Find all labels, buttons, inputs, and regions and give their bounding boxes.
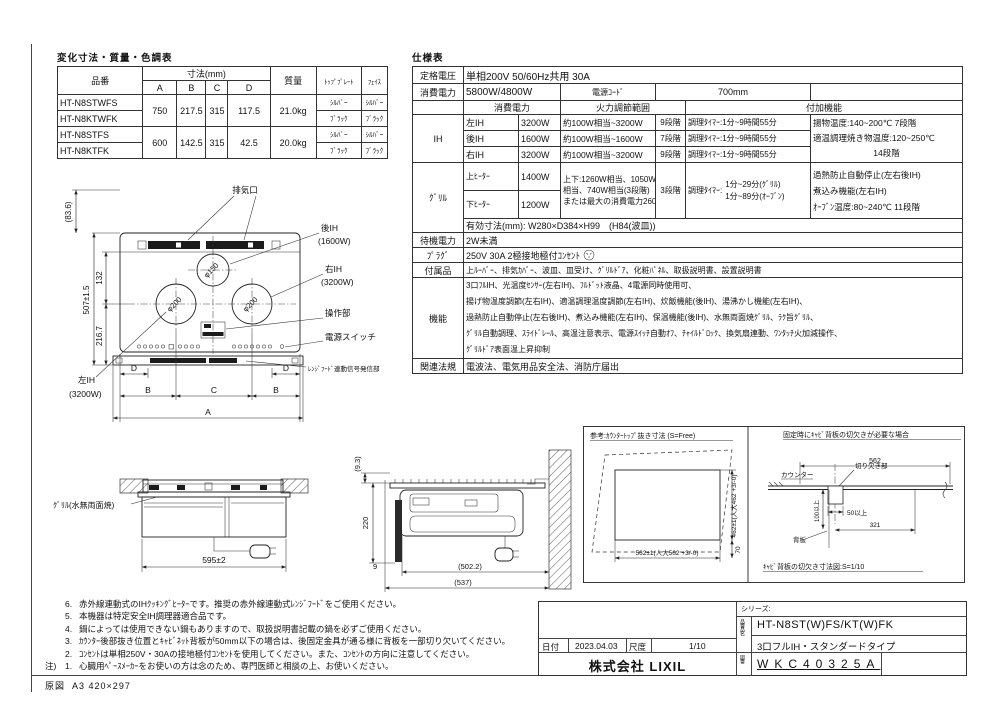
note-text: 赤外線連動式のIHｸｯｷﾝｸﾞﾋｰﾀｰです。推奨の赤外線連動式ﾚﾝｼﾞﾌｰﾄﾞを… (79, 598, 401, 610)
accessories-value: 上ﾙｰﾊﾞｰ、排気ｶﾊﾞｰ、波皿、皿受け、ｸﾞﾘﾙﾄﾞｱ、化粧ﾊﾟﾈﾙ、取扱説明… (464, 263, 963, 278)
power-cord-side (495, 536, 519, 561)
countertop-left (120, 479, 148, 493)
unit-body-side (385, 480, 523, 572)
spec-table-title: 仕様表 (412, 50, 444, 64)
grill-extra-line: 過熱防止自動停止(左右後IH) (813, 167, 960, 183)
reference-panels: 参考:ｶｳﾝﾀｰﾄｯﾌﾟ抜き寸法 (S=Free) 562±1(人大562 +3… (583, 426, 965, 583)
countertop-right (281, 479, 308, 493)
dim-216-7: 216.7 (95, 325, 104, 346)
mass-cell: 20.0kg (270, 127, 316, 159)
grill-timer-line: 1分~89分(ｵｰﾌﾞﾝ) (725, 191, 784, 203)
scale-value: 1/10 (689, 641, 706, 651)
heater-name: 下ﾋｰﾀｰ (464, 191, 519, 219)
title-block-divider (736, 602, 737, 675)
table-row: 有効寸法(mm): W280×D384×H99 (H84(波皿)) (413, 219, 963, 233)
col-header-topplate: ﾄｯﾌﾟﾌﾟﾚｰﾄ (316, 67, 361, 95)
col-header-range: 火力調節範囲 (561, 101, 686, 115)
cutout-title: 参考:ｶｳﾝﾀｰﾄｯﾌﾟ抜き寸法 (S=Free) (590, 431, 695, 440)
model-cell: HT-N8STFS (58, 127, 143, 143)
divider (736, 652, 966, 653)
rear-ih-watt: (1600W) (318, 236, 351, 246)
functions-line: ｸﾞﾘﾙﾄﾞｱ表面温上昇抑制 (466, 342, 960, 358)
accessories-label: 付属品 (413, 263, 464, 278)
table-row: ｸﾞﾘﾙ 上ﾋｰﾀｰ 1400W 上下:1260W相当、1050W 相当、740… (413, 163, 963, 191)
burner-name: 右IH (464, 147, 519, 163)
burner-watt: 3200W (519, 115, 561, 131)
notes-block: 6.赤外線連動式のIHｸｯｷﾝｸﾞﾋｰﾀｰです。推奨の赤外線連動式ﾚﾝｼﾞﾌｰﾄ… (45, 598, 540, 672)
drawing-no-col-label: 図番 (738, 655, 745, 673)
drawing-sheet: 変化寸法・質量・色調表 品番 寸法(mm) 質量 ﾄｯﾌﾟﾌﾟﾚｰﾄ ﾌｪｲｽ … (0, 0, 1000, 708)
col-header-a: A (143, 81, 177, 95)
model-col-label: 品番品名 (738, 619, 745, 651)
grill-extra-line: ｵｰﾌﾞﾝ温度:80~240℃ 11段階 (813, 199, 960, 215)
face-cell: ｼﾙﾊﾞｰ (361, 127, 387, 143)
divider (539, 652, 736, 653)
table-row: 定格電圧 単相200V 50/60Hz共用 30A (413, 67, 963, 84)
left-ih-label: 左IH (78, 375, 95, 385)
dim-letter-b: B (273, 385, 279, 395)
dim-595: 595±2 (202, 555, 226, 565)
grill-timer-label: 調理ﾀｲﾏｰ: (688, 185, 722, 196)
cutout-panel: 参考:ｶｳﾝﾀｰﾄｯﾌﾟ抜き寸法 (S=Free) 562±1(人大562 +3… (590, 431, 742, 562)
table-row: ﾌﾟﾗｸﾞ 250V 30A 2極接地極付ｺﾝｾﾝﾄ (413, 248, 963, 263)
table-row: 消費電力 5800W/4800W 電源ｺｰﾄﾞ 700mm (413, 84, 963, 101)
side-view-drawing: (9.3) 220 9 (502.2) (537) (345, 426, 585, 604)
original-label: 原図 (45, 681, 65, 691)
table-row: 付属品 上ﾙｰﾊﾞｰ、排気ｶﾊﾞｰ、波皿、皿受け、ｸﾞﾘﾙﾄﾞｱ、化粧ﾊﾟﾈﾙ、… (413, 263, 963, 278)
burner-timer: 調理ﾀｲﾏｰ:1分~9時間55分 (686, 131, 811, 147)
burner-range: 約100W相当~3200W (561, 147, 656, 163)
dim-537: (537) (454, 578, 472, 587)
dim-table-title: 変化寸法・質量・色調表 (57, 50, 173, 64)
front-view-drawing: 595±2 ｸﾞﾘﾙ(水無両面焼) (45, 450, 345, 602)
dim-9: 9 (373, 562, 377, 571)
dim-letter-c: C (211, 385, 217, 395)
dim-b: 142.5 (177, 127, 206, 159)
note-marker: 注) (45, 660, 65, 672)
empty-cell (811, 84, 963, 101)
footer-rule (31, 675, 538, 676)
plug-value: 250V 30A 2極接地極付ｺﾝｾﾝﾄ (466, 251, 580, 261)
note-number: 1. (65, 660, 79, 672)
functions-cell: 3口ﾌﾙIH、光温度ｾﾝｻｰ(左右IH)、ﾌﾙﾄﾞｯﾄ液晶、4電源同時使用可、 … (464, 278, 963, 359)
burner-steps: 9段階 (656, 115, 686, 131)
laws-value: 電波法、電気用品安全法、消防庁届出 (464, 359, 963, 374)
notch-rect (828, 486, 843, 504)
note-text: 心臓用ﾍﾟｰｽﾒｰｶｰをお使いの方は念のため、専門医師と相談の上、お使いください… (79, 660, 394, 672)
backboard-label: 背板 (793, 535, 807, 544)
spec-table: 定格電圧 単相200V 50/60Hz共用 30A 消費電力 5800W/480… (412, 66, 963, 374)
note-text: 本機器は特定安全IH調理器適合品です。 (79, 610, 231, 622)
note-line: 5.本機器は特定安全IH調理器適合品です。 (45, 610, 540, 622)
grill-extra-line: 煮込み機能(左右IH) (813, 183, 960, 199)
face-cell: ｼﾙﾊﾞｰ (361, 95, 387, 111)
backboard-title: 固定時にｷｬﾋﾞ背板の切欠きが必要な場合 (783, 430, 909, 439)
dim-letter-b: B (145, 385, 151, 395)
dim-c: 315 (206, 95, 228, 127)
topplate-cell: ｼﾙﾊﾞｰ (316, 95, 361, 111)
top-plate-section (138, 480, 290, 497)
grill-range-cell: 上下:1260W相当、1050W 相当、740W相当(3段階) または最大の消費… (561, 163, 656, 219)
counter-label: カウンター (781, 470, 814, 479)
note-number: 4. (65, 623, 79, 635)
dim-table: 品番 寸法(mm) 質量 ﾄｯﾌﾟﾌﾟﾚｰﾄ ﾌｪｲｽ A B C D HT-N… (57, 66, 388, 159)
mass-cell: 21.0kg (270, 95, 316, 127)
grill-body (142, 497, 286, 537)
heater-watt: 1200W (519, 191, 561, 219)
rear-ih-label: 後IH (321, 223, 338, 233)
grill-timer-cell: 調理ﾀｲﾏｰ: 1分~29分(ｸﾞﾘﾙ) 1分~89分(ｵｰﾌﾞﾝ) (686, 163, 811, 219)
control-buttons (137, 345, 283, 350)
note-line: 4.鍋によっては使用できない鍋もありますので、取扱説明書記載の鍋を必ずご使用くだ… (45, 623, 540, 635)
cutout-70: 70 (735, 546, 742, 554)
col-header-power: 消費電力 (464, 101, 561, 115)
note-number: 5. (65, 610, 79, 622)
backboard-caption: ｷｬﾋﾞ背板の切欠き寸法図:S=1/10 (763, 562, 864, 571)
note-number: 6. (65, 598, 79, 610)
dim-507: 507±1.5 (82, 285, 91, 314)
table-row: 待機電力 2W未満 (413, 233, 963, 248)
dim-d: 42.5 (228, 127, 270, 159)
col-header-b: B (177, 81, 206, 95)
ih-extra-line: 適温調理焼き物温度:120~250℃ (813, 131, 960, 146)
col-header-d: D (228, 81, 270, 95)
burner-steps: 9段階 (656, 147, 686, 163)
note-text: 鍋によっては使用できない鍋もありますので、取扱説明書記載の鍋を必ずご使用ください… (79, 623, 426, 635)
series-label: シリーズ: (741, 604, 771, 614)
notch-label: 切り欠き部 (855, 461, 888, 470)
heater-name: 上ﾋｰﾀｰ (464, 163, 519, 191)
note-line: 6.赤外線連動式のIHｸｯｷﾝｸﾞﾋｰﾀｰです。推奨の赤外線連動式ﾚﾝｼﾞﾌｰﾄ… (45, 598, 540, 610)
divider (736, 616, 966, 617)
cutout-rect (615, 470, 720, 540)
note-line: 3.ｶｳﾝﾀｰ後部抜き位置とｷｬﾋﾞﾈｯﾄ背板が50mm以下の場合は、後固定金具… (45, 635, 540, 647)
note-number: 3. (65, 635, 79, 647)
extension-lines (72, 190, 303, 422)
grill-timer-line: 1分~29分(ｸﾞﾘﾙ) (725, 179, 784, 191)
dim-220: 220 (361, 517, 370, 530)
model-cell: HT-N8KTWFK (58, 111, 143, 127)
burner-watt: 3200W (519, 147, 561, 163)
burner-timer: 調理ﾀｲﾏｰ:1分~9時間55分 (686, 115, 811, 131)
date-value: 2023.04.03 (575, 641, 618, 651)
sheet-border-left (31, 44, 32, 692)
side-dimensions: (9.3) 220 9 (502.2) (537) (353, 456, 549, 592)
grill-extra-cell: 過熱防止自動停止(左右後IH) 煮込み機能(左右IH) ｵｰﾌﾞﾝ温度:80~2… (811, 163, 963, 219)
divider (751, 635, 966, 636)
rated-voltage-label: 定格電圧 (413, 67, 464, 84)
dim-letter-d: D (131, 363, 137, 373)
plug-value-cell: 250V 30A 2極接地極付ｺﾝｾﾝﾄ (464, 248, 963, 263)
col-header-mass: 質量 (270, 67, 316, 95)
functions-line: ｸﾞﾘﾙ自動調理、ｽﾗｲﾄﾞﾚｰﾙ、高温注意表示、電源ｽｲｯﾁ自動ｵﾌ、ﾁｬｲﾙ… (466, 326, 960, 342)
countertop-outline (592, 450, 732, 552)
plug-label: ﾌﾟﾗｸﾞ (413, 248, 464, 263)
company-name: 株式会社 LIXIL (539, 656, 736, 675)
divider (568, 638, 569, 652)
ih-extra-line: 14段階 (813, 146, 960, 161)
top-plate-side (390, 479, 545, 488)
col-header-dims: 寸法(mm) (143, 67, 270, 81)
divider (751, 616, 752, 675)
exhaust-vents (138, 241, 280, 249)
table-row: HT-N8STFS 600 142.5 315 42.5 20.0kg ｼﾙﾊﾞ… (58, 127, 388, 143)
burner-name: 左IH (464, 115, 519, 131)
model-number: HT-N8ST(W)FS/KT(W)FK (757, 619, 893, 631)
dim-c: 315 (206, 127, 228, 159)
divider (651, 638, 652, 652)
dim-83-6: (83.6) (64, 201, 73, 222)
col-header-face: ﾌｪｲｽ (361, 67, 387, 95)
power-switch-label: 電源スイッチ (325, 332, 376, 342)
control-panel-label: 操作部 (325, 308, 351, 318)
backboard-panel: 固定時にｷｬﾋﾞ背板の切欠きが必要な場合 562 カウンター 切り欠き部 50以… (763, 430, 961, 572)
power-label: 消費電力 (413, 84, 464, 101)
note-number: 2. (65, 648, 79, 660)
original-size-note: 原図 A3 420×297 (45, 679, 131, 692)
grill-label: ｸﾞﾘﾙ (413, 163, 464, 233)
dim-502-2: (502.2) (458, 562, 482, 571)
face-cell: ﾌﾞﾗｯｸ (361, 111, 387, 127)
dim-a: 600 (143, 127, 177, 159)
topplate-cell: ﾌﾞﾗｯｸ (316, 143, 361, 159)
grill-range-line: 相当、740W相当(3段階) (563, 185, 653, 196)
top-view-drawing: φ150 φ200 φ200 (38, 176, 410, 434)
burner-watt: 1600W (519, 131, 561, 147)
model-cell: HT-N8STWFS (58, 95, 143, 111)
burner-range: 約100W相当~1600W (561, 131, 656, 147)
col-header-model: 品番 (58, 67, 143, 95)
cord-label: 電源ｺｰﾄﾞ (561, 84, 656, 101)
topplate-cell: ﾌﾞﾗｯｸ (316, 111, 361, 127)
table-row: 消費電力 火力調節範囲 付加機能 (413, 101, 963, 115)
power-value: 5800W/4800W (464, 84, 561, 101)
functions-line: 3口ﾌﾙIH、光温度ｾﾝｻｰ(左右IH)、ﾌﾙﾄﾞｯﾄ液晶、4電源同時使用可、 (466, 278, 960, 294)
grill-steps: 3段階 (656, 163, 686, 219)
title-block: 日付 2023.04.03 尺度 1/10 株式会社 LIXIL シリーズ: 品… (538, 601, 967, 676)
notch-321: 321 (870, 522, 881, 529)
left-ih-watt: (3200W) (69, 389, 102, 399)
burner-steps: 7段階 (656, 131, 686, 147)
grill-range-line: または最大の消費電力2600W (563, 196, 653, 207)
exhaust-label: 排気口 (232, 185, 258, 195)
heater-watt: 1400W (519, 163, 561, 191)
dim-letter-a: A (205, 407, 211, 417)
effective-size: 有効寸法(mm): W280×D384×H99 (H84(波皿)) (464, 219, 963, 233)
product-name: 3口フルIH・スタンダードタイプ (757, 639, 895, 653)
standby-value: 2W未満 (464, 233, 963, 248)
right-ih-label: 右IH (325, 264, 342, 274)
drawing-number: WKC40325A (757, 657, 880, 671)
ih-label: IH (413, 115, 464, 163)
hood-signal-label: ﾚﾝｼﾞﾌｰﾄﾞ連動信号発信部 (308, 364, 380, 373)
dim-a: 750 (143, 95, 177, 127)
topplate-cell: ｼﾙﾊﾞｰ (316, 127, 361, 143)
laws-label: 関連法規 (413, 359, 464, 374)
wall-section (549, 450, 571, 589)
cutout-height: 462±1(人大462 +3/-0) (729, 474, 738, 537)
face-cell: ﾌﾞﾗｯｸ (361, 143, 387, 159)
original-size: A3 420×297 (72, 681, 131, 691)
ih-extra-line: 揚物温度:140~200℃ 7段階 (813, 116, 960, 131)
left-dimensions: (83.6) 507±1.5 132 216.7 (64, 190, 106, 365)
dim-letter-d: D (283, 363, 289, 373)
grill-range-line: 上下:1260W相当、1050W (563, 174, 653, 185)
note-line: 注)1.心臓用ﾍﾟｰｽﾒｰｶｰをお使いの方は念のため、専門医師と相談の上、お使い… (45, 660, 540, 672)
dim-d: 117.5 (228, 95, 270, 127)
dim-b: 217.5 (177, 95, 206, 127)
table-row: 機能 3口ﾌﾙIH、光温度ｾﾝｻｰ(左右IH)、ﾌﾙﾄﾞｯﾄ液晶、4電源同時使用… (413, 278, 963, 359)
empty-cell (413, 101, 464, 115)
burner-range: 約100W相当~3200W (561, 115, 656, 131)
functions-label: 機能 (413, 278, 464, 359)
notch-100: 100以上 (813, 500, 821, 522)
burner-timer: 調理ﾀｲﾏｰ:1分~9時間55分 (686, 147, 811, 163)
rated-voltage-value: 単相200V 50/60Hz共用 30A (464, 67, 963, 84)
note-text: ｺﾝｾﾝﾄは単相250V・30Aの接地極付ｺﾝｾﾝﾄを使用してください。また、ｺ… (79, 648, 474, 660)
note-text: ｶｳﾝﾀｰ後部抜き位置とｷｬﾋﾞﾈｯﾄ背板が50mm以下の場合は、後固定金具が通… (79, 635, 510, 647)
col-header-extra: 付加機能 (686, 101, 963, 115)
note-line: 2.ｺﾝｾﾝﾄは単相250V・30Aの接地極付ｺﾝｾﾝﾄを使用してください。また… (45, 648, 540, 660)
standby-label: 待機電力 (413, 233, 464, 248)
divider (881, 652, 882, 675)
model-cell: HT-N8KTFK (58, 143, 143, 159)
burner-name: 後IH (464, 131, 519, 147)
bottom-dimensions: D D B C B A (113, 363, 303, 418)
col-header-c: C (206, 81, 228, 95)
cord-value: 700mm (656, 84, 811, 101)
grill-label: ｸﾞﾘﾙ(水無両面焼) (53, 500, 115, 510)
functions-line: 揚げ物温度調節(左右IH)、適温調理温度調節(左右IH)、炊飯機能(後IH)、湯… (466, 294, 960, 310)
dim-132: 132 (95, 271, 104, 285)
dim-9-3: (9.3) (353, 456, 362, 472)
cutout-width: 562±1(人大562 +3/-0) (635, 548, 698, 557)
table-row: HT-N8STWFS 750 217.5 315 117.5 21.0kg ｼﾙ… (58, 95, 388, 111)
callout-leaders (96, 196, 323, 377)
outlet-icon (583, 249, 595, 261)
divider (626, 638, 627, 652)
ih-extra-cell: 揚物温度:140~200℃ 7段階 適温調理焼き物温度:120~250℃ 14段… (811, 115, 963, 163)
table-row: IH 左IH 3200W 約100W相当~3200W 9段階 調理ﾀｲﾏｰ:1分… (413, 115, 963, 131)
notch-50: 50以上 (847, 508, 868, 517)
table-row: 関連法規 電波法、電気用品安全法、消防庁届出 (413, 359, 963, 374)
functions-line: 過熱防止自動停止(左右後IH)、煮込み機能(左右IH)、保温機能(後IH)、水無… (466, 310, 960, 326)
right-ih-watt: (3200W) (321, 277, 354, 287)
